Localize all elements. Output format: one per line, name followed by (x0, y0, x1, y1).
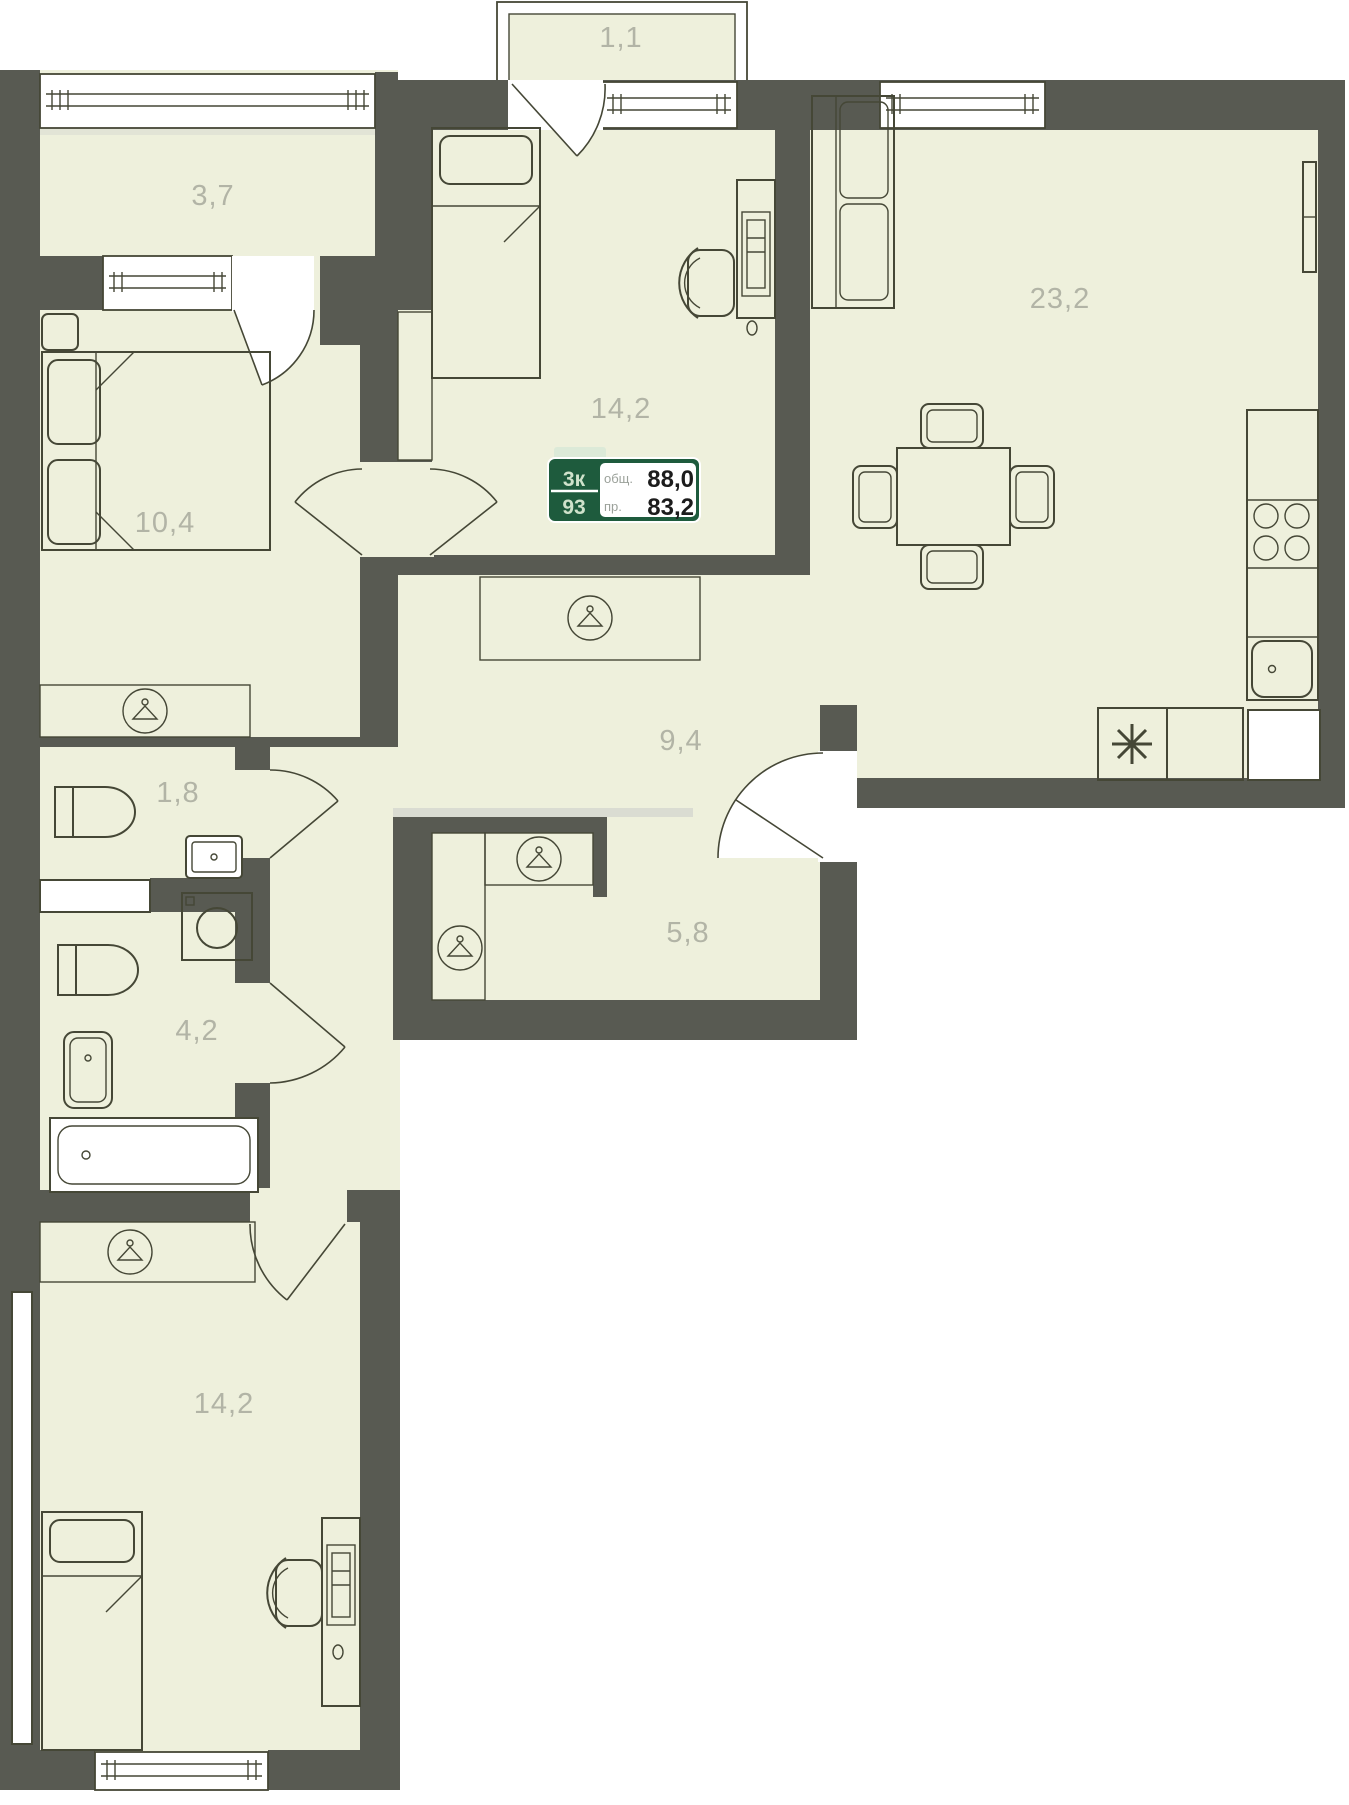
room-area-label-bathroom: 4,2 (175, 1015, 218, 1047)
bathtub (50, 1118, 258, 1192)
badge-total-label: общ. (604, 471, 633, 486)
window-bedroom-bottom (95, 1752, 268, 1790)
badge-living-label: пр. (604, 499, 622, 514)
room-area-label-wc: 1,8 (156, 777, 199, 809)
badge-type-code: 3к (563, 468, 586, 491)
window-bedroom-left (103, 256, 232, 310)
room-area-label-balcony-top: 1,1 (599, 22, 642, 54)
badge-unit-number: 93 (562, 496, 585, 519)
fridge (1248, 710, 1320, 780)
window-bedroom-top (601, 82, 737, 128)
area-badge: 3к 93 общ. 88,0 пр. 83,2 (548, 447, 700, 522)
room-area-label-bedroom-left: 10,4 (135, 507, 195, 539)
shaft (40, 880, 150, 912)
room-area-label-bedroom-top: 14,2 (591, 393, 651, 425)
wc-sink (186, 836, 242, 878)
room-area-label-living: 23,2 (1030, 283, 1090, 315)
room-area-label-hallway: 9,4 (659, 725, 702, 757)
room-area-label-bedroom-bottom: 14,2 (194, 1388, 254, 1420)
badge-total-value: 88,0 (647, 466, 694, 493)
badge-living-value: 83,2 (647, 494, 694, 521)
room-area-label-balcony-top-left: 3,7 (191, 180, 234, 212)
window-living (880, 82, 1045, 128)
room-area-label-hall: 5,8 (666, 917, 709, 949)
wall-channel (12, 1292, 32, 1744)
floor-plan: 3,7 1,1 14,2 23,2 10,4 9,4 1,8 5,8 4,2 1… (0, 0, 1349, 1805)
window-balcony-top-left (40, 74, 375, 128)
floor-plan-page: 3,7 1,1 14,2 23,2 10,4 9,4 1,8 5,8 4,2 1… (0, 0, 1349, 1805)
asterisk-appliance-icon (1112, 724, 1152, 764)
